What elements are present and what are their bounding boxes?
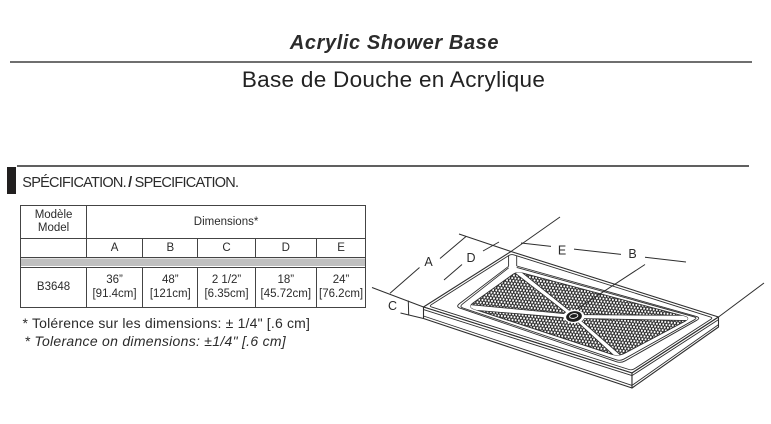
svg-text:D: D bbox=[466, 251, 475, 265]
svg-text:E: E bbox=[558, 244, 566, 258]
svg-text:C: C bbox=[388, 299, 397, 313]
svg-text:B: B bbox=[628, 247, 636, 261]
svg-text:A: A bbox=[424, 255, 433, 269]
